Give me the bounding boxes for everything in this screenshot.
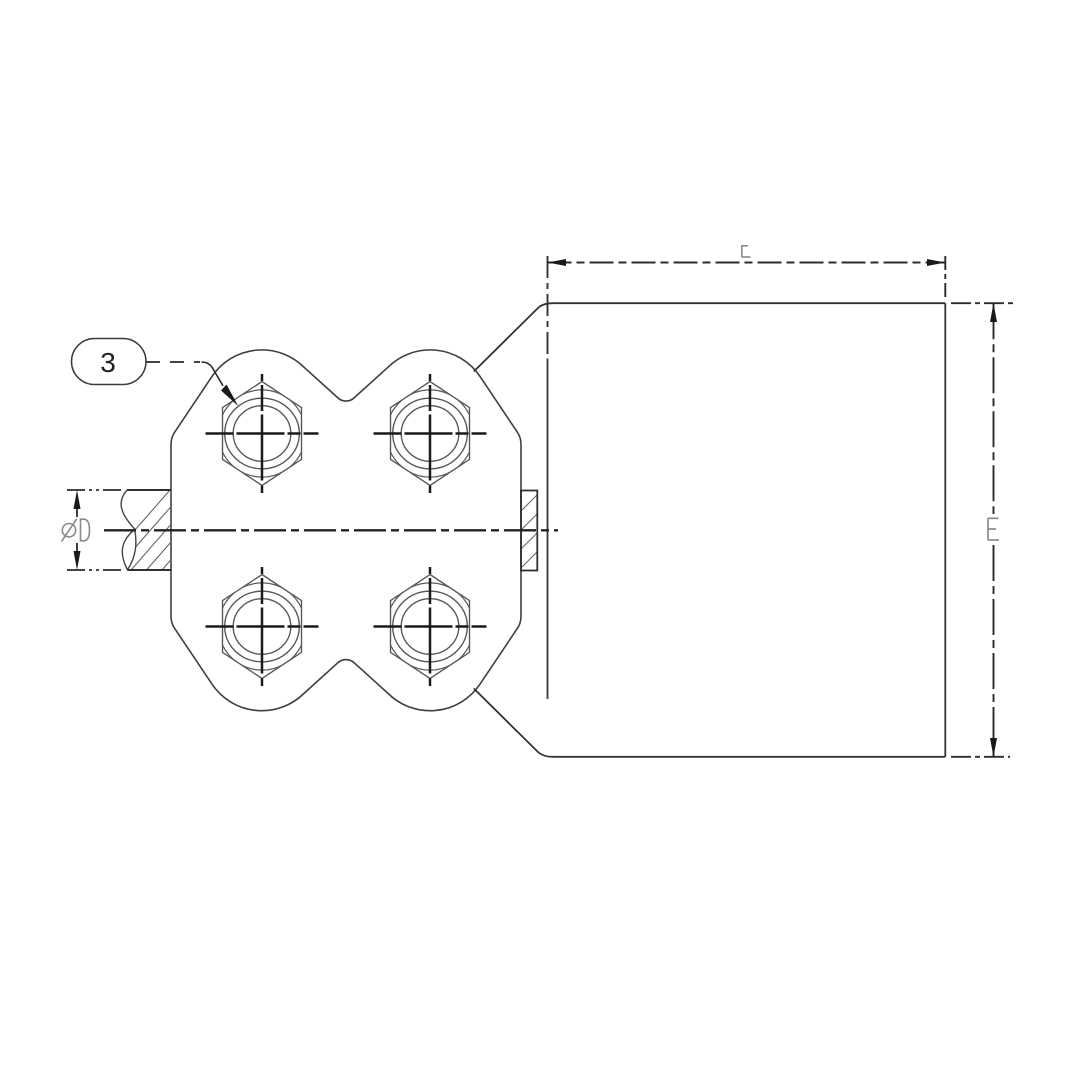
svg-text:3: 3 xyxy=(100,347,116,378)
